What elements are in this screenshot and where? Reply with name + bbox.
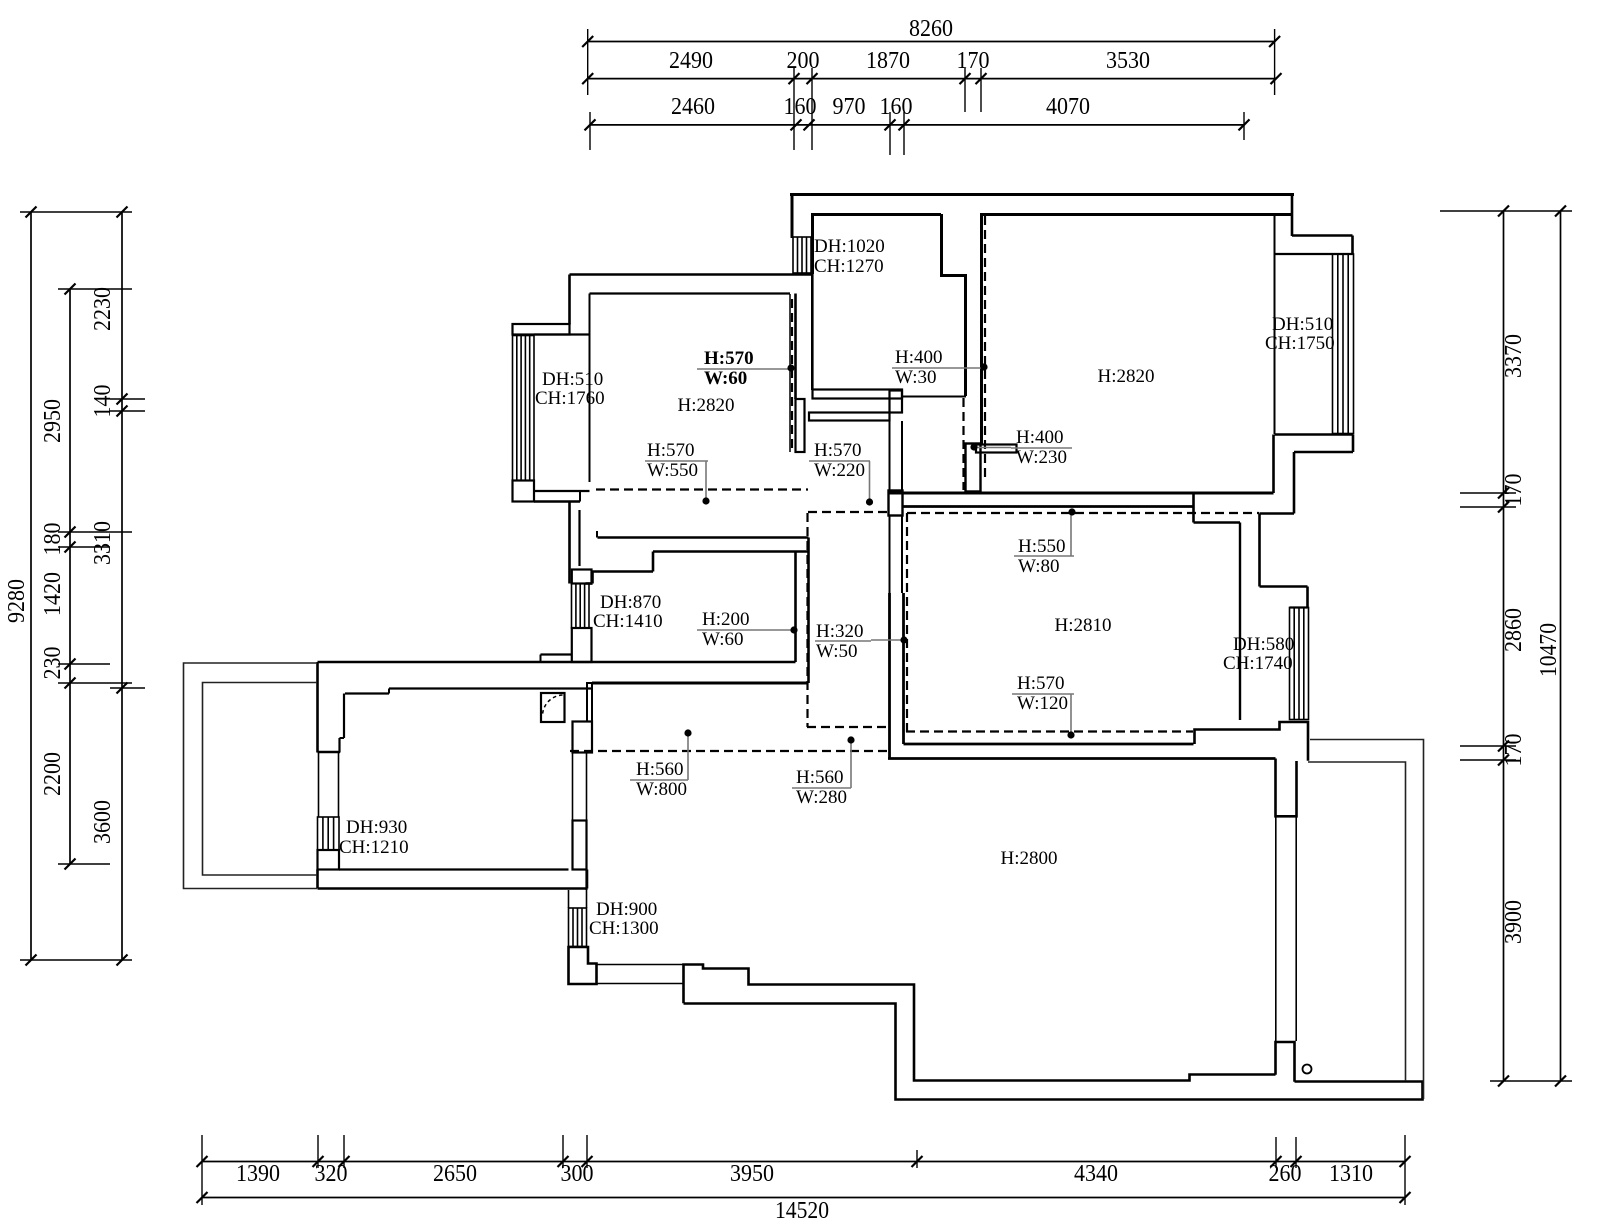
svg-text:W:80: W:80 <box>1018 556 1060 577</box>
svg-text:H:2800: H:2800 <box>1001 848 1058 869</box>
svg-text:W:60: W:60 <box>704 368 747 389</box>
svg-text:170: 170 <box>1500 474 1527 507</box>
svg-text:DH:1020: DH:1020 <box>814 236 885 257</box>
svg-text:H:2820: H:2820 <box>678 395 735 416</box>
svg-text:230: 230 <box>39 647 66 680</box>
svg-text:H:550: H:550 <box>1018 536 1066 557</box>
svg-text:140: 140 <box>89 385 116 418</box>
svg-text:4340: 4340 <box>1074 1160 1118 1187</box>
svg-text:160: 160 <box>880 93 913 120</box>
svg-text:DH:510: DH:510 <box>542 369 603 390</box>
svg-text:CH:1750: CH:1750 <box>1265 333 1335 354</box>
svg-text:1420: 1420 <box>39 572 66 616</box>
svg-text:320: 320 <box>315 1160 348 1187</box>
svg-text:4070: 4070 <box>1046 93 1090 120</box>
svg-text:CH:1300: CH:1300 <box>589 918 659 939</box>
svg-text:2950: 2950 <box>39 399 66 443</box>
svg-text:CH:1760: CH:1760 <box>535 388 605 409</box>
svg-text:W:280: W:280 <box>796 787 847 808</box>
svg-text:DH:930: DH:930 <box>346 817 407 838</box>
svg-text:H:570: H:570 <box>814 440 862 461</box>
svg-text:W:60: W:60 <box>702 629 744 650</box>
svg-text:W:230: W:230 <box>1016 447 1067 468</box>
svg-text:W:50: W:50 <box>816 641 858 662</box>
svg-text:2200: 2200 <box>39 752 66 796</box>
svg-text:3600: 3600 <box>89 800 116 844</box>
svg-text:H:560: H:560 <box>796 767 844 788</box>
svg-text:W:120: W:120 <box>1017 693 1068 714</box>
svg-text:2460: 2460 <box>671 93 715 120</box>
svg-text:DH:580: DH:580 <box>1233 634 1294 655</box>
svg-text:W:550: W:550 <box>647 460 698 481</box>
svg-text:3900: 3900 <box>1500 900 1527 944</box>
svg-text:170: 170 <box>957 47 990 74</box>
svg-text:10470: 10470 <box>1535 623 1562 677</box>
svg-text:3950: 3950 <box>730 1160 774 1187</box>
svg-text:H:400: H:400 <box>895 347 943 368</box>
svg-text:H:2820: H:2820 <box>1098 366 1155 387</box>
svg-text:2860: 2860 <box>1500 608 1527 652</box>
svg-text:2230: 2230 <box>89 287 116 331</box>
svg-text:3310: 3310 <box>89 521 116 565</box>
svg-text:H:570: H:570 <box>647 440 695 461</box>
svg-text:H:200: H:200 <box>702 609 750 630</box>
svg-text:DH:900: DH:900 <box>596 899 657 920</box>
svg-text:W:30: W:30 <box>895 367 937 388</box>
svg-text:DH:870: DH:870 <box>600 592 661 613</box>
svg-text:160: 160 <box>784 93 817 120</box>
svg-text:260: 260 <box>1269 1160 1302 1187</box>
svg-text:H:400: H:400 <box>1016 427 1064 448</box>
svg-text:14520: 14520 <box>775 1197 829 1224</box>
svg-text:170: 170 <box>1500 734 1527 767</box>
svg-text:1310: 1310 <box>1329 1160 1373 1187</box>
svg-text:1870: 1870 <box>866 47 910 74</box>
svg-text:CH:1270: CH:1270 <box>814 256 884 277</box>
svg-text:CH:1210: CH:1210 <box>339 837 409 858</box>
svg-text:W:220: W:220 <box>814 460 865 481</box>
svg-text:H:560: H:560 <box>636 759 684 780</box>
svg-text:300: 300 <box>561 1160 594 1187</box>
svg-text:H:570: H:570 <box>1017 673 1065 694</box>
svg-text:CH:1740: CH:1740 <box>1223 653 1293 674</box>
svg-text:3530: 3530 <box>1106 47 1150 74</box>
svg-text:H:320: H:320 <box>816 621 864 642</box>
svg-text:970: 970 <box>833 93 866 120</box>
svg-text:1390: 1390 <box>236 1160 280 1187</box>
svg-text:180: 180 <box>39 523 66 556</box>
svg-text:H:570: H:570 <box>704 348 754 369</box>
svg-text:2490: 2490 <box>669 47 713 74</box>
svg-text:CH:1410: CH:1410 <box>593 611 663 632</box>
svg-text:8260: 8260 <box>909 15 953 42</box>
svg-text:3370: 3370 <box>1500 334 1527 378</box>
svg-text:W:800: W:800 <box>636 779 687 800</box>
svg-text:2650: 2650 <box>433 1160 477 1187</box>
svg-text:DH:510: DH:510 <box>1272 314 1333 335</box>
svg-text:9280: 9280 <box>3 579 30 623</box>
svg-text:H:2810: H:2810 <box>1055 615 1112 636</box>
svg-text:200: 200 <box>787 47 820 74</box>
